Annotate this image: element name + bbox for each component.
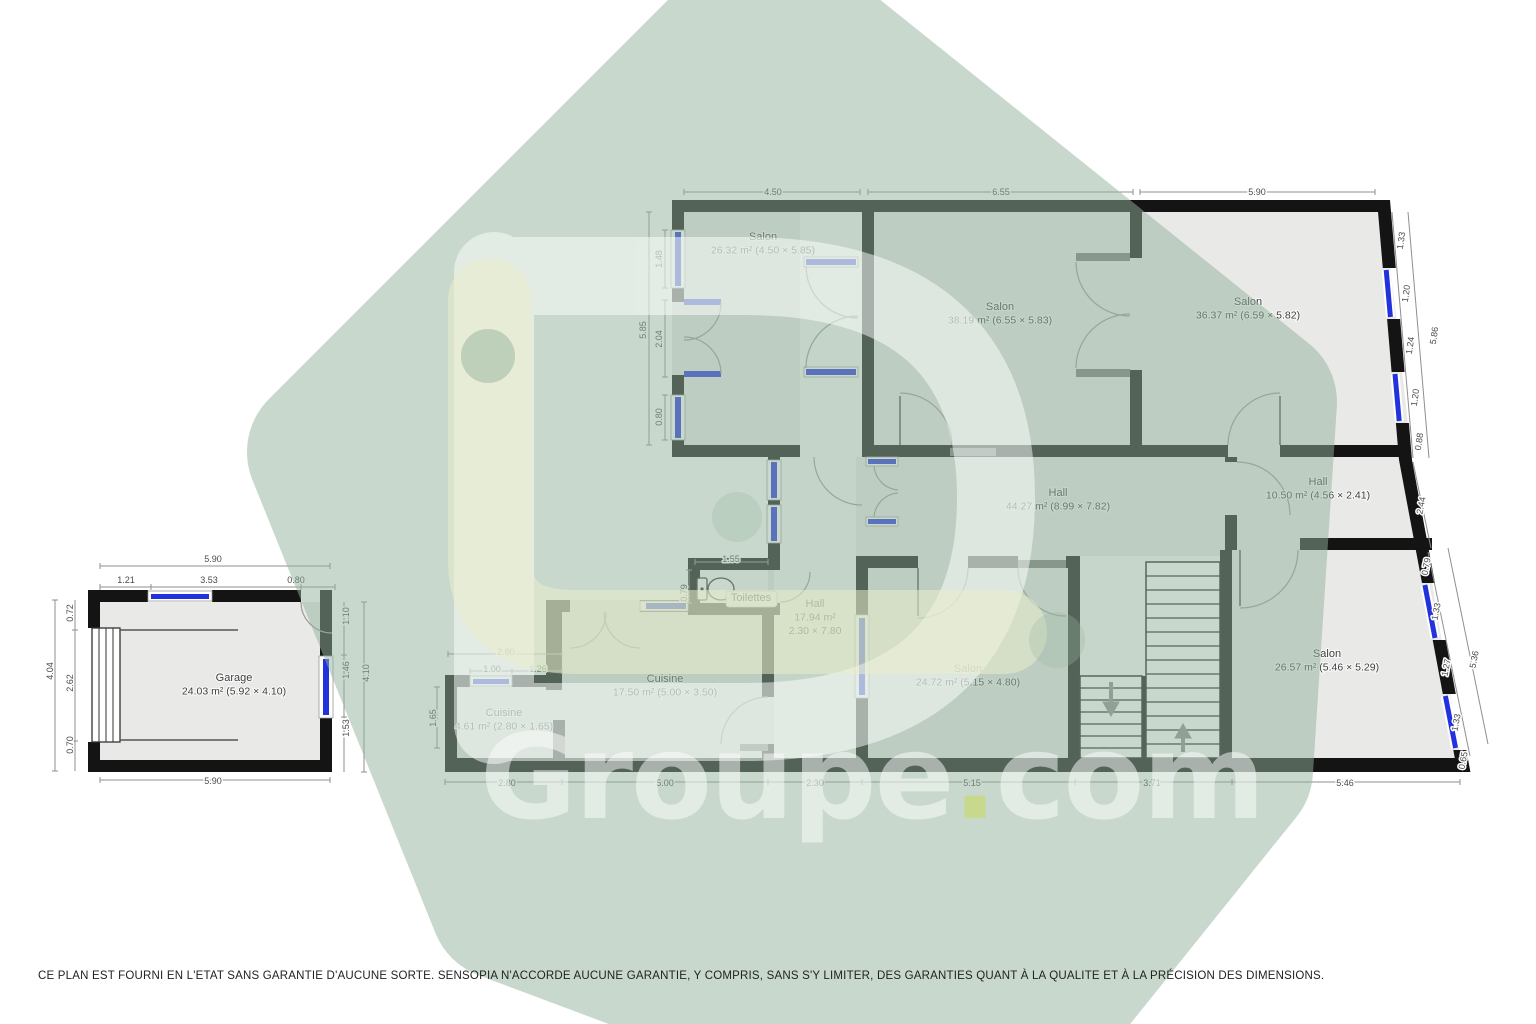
dimension-label: 2.62 [65, 674, 75, 692]
dimension-label: 1.33 [1395, 231, 1407, 250]
watermark: Groupe.com [322, 6, 1263, 1024]
logo-dot3-icon [1029, 612, 1085, 668]
dimension-label: 0.70 [65, 736, 75, 754]
dimension-label: 1.21 [117, 575, 135, 585]
dimension-label: 1.53 [341, 719, 351, 737]
logo-dot-icon [461, 329, 515, 383]
dimension-label: 5.36 [1467, 650, 1480, 669]
dimension-label: 5.46 [1336, 778, 1354, 788]
dimension-label: 5.90 [1248, 187, 1266, 197]
logo-dot2-icon [712, 492, 762, 542]
dimension-label: 0.88 [1413, 432, 1425, 451]
dimension-label: 2.44 [1414, 496, 1427, 515]
dimension-label: 3.53 [200, 575, 218, 585]
dimension-label: 1.20 [1409, 388, 1421, 407]
dimension-label: 5.86 [1428, 326, 1440, 345]
dimension-label: 5.90 [204, 776, 222, 786]
dimension-label: 5.90 [204, 554, 222, 564]
dimension-label: 1.33 [1449, 713, 1462, 732]
dimension-label: 0.72 [65, 604, 75, 622]
watermark-text: Groupe.com [480, 708, 1263, 846]
dimension-label: 1.24 [1404, 336, 1416, 355]
floor-plan-svg: Garage24.03 m² (5.92 × 4.10)Salon26.32 m… [0, 0, 1536, 1024]
dimension-label: 4.04 [45, 662, 55, 680]
disclaimer-text: CE PLAN EST FOURNI EN L'ETAT SANS GARANT… [38, 970, 1518, 982]
dimension-label: 1.33 [1429, 602, 1442, 621]
dimension-label: 1.20 [1400, 284, 1412, 303]
floor-plan-page: Garage24.03 m² (5.92 × 4.10)Salon26.32 m… [0, 0, 1536, 1024]
